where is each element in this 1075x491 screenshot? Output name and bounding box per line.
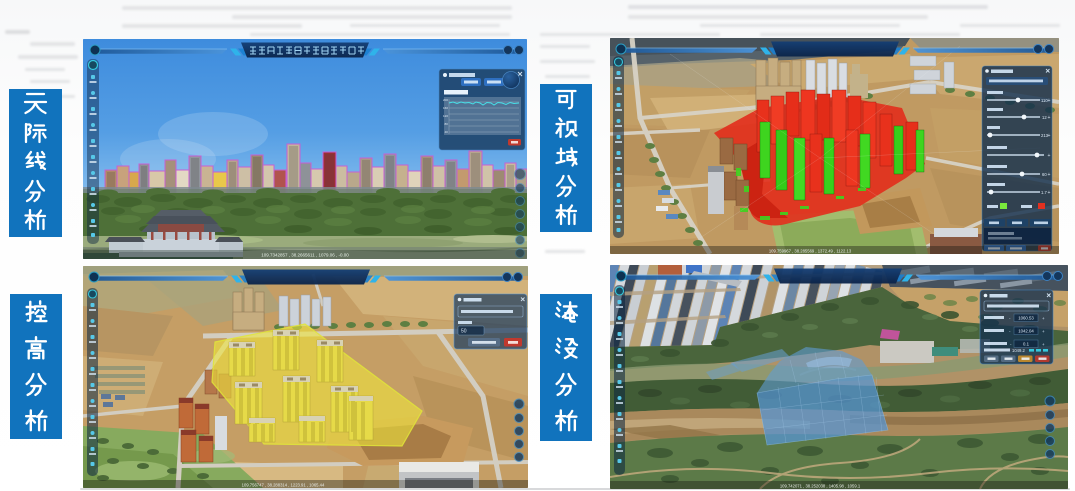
svg-text:1060.53: 1060.53 [1018, 316, 1034, 321]
svg-text:+: + [1048, 98, 1051, 104]
svg-text:+: + [1048, 190, 1051, 196]
svg-text:80: 80 [445, 122, 449, 126]
svg-text:1042.04: 1042.04 [1018, 329, 1034, 334]
svg-text:109.742071 , 38.252038 , 1405.: 109.742071 , 38.252038 , 1405.98 , 1059.… [780, 484, 861, 489]
svg-text:+: + [1048, 133, 1051, 139]
svg-text:+: + [1042, 316, 1045, 321]
svg-text:160: 160 [443, 106, 448, 110]
svg-text:+: + [1042, 329, 1045, 334]
svg-text:109.7342857 , 38.2665611 , 107: 109.7342857 , 38.2665611 , 1079.06 , -0.… [261, 253, 349, 258]
svg-text:+: + [1042, 342, 1045, 347]
svg-text:50: 50 [461, 329, 467, 335]
svg-text:0.1: 0.1 [1023, 342, 1030, 347]
svg-text:+: + [1048, 153, 1051, 159]
svg-text:120: 120 [443, 114, 448, 118]
svg-text:+: + [1048, 172, 1051, 178]
svg-text:109.759967 , 38.285569 , 1372.: 109.759967 , 38.285569 , 1372.49 , 1122.… [769, 249, 852, 254]
svg-text:109.756747 , 38.288314 , 1223.: 109.756747 , 38.288314 , 1223.91 , 1065.… [242, 483, 325, 488]
svg-text:40: 40 [445, 130, 449, 134]
svg-text:+: + [1048, 115, 1051, 121]
svg-text:1049.2: 1049.2 [1012, 348, 1025, 353]
svg-text:200: 200 [443, 98, 448, 102]
